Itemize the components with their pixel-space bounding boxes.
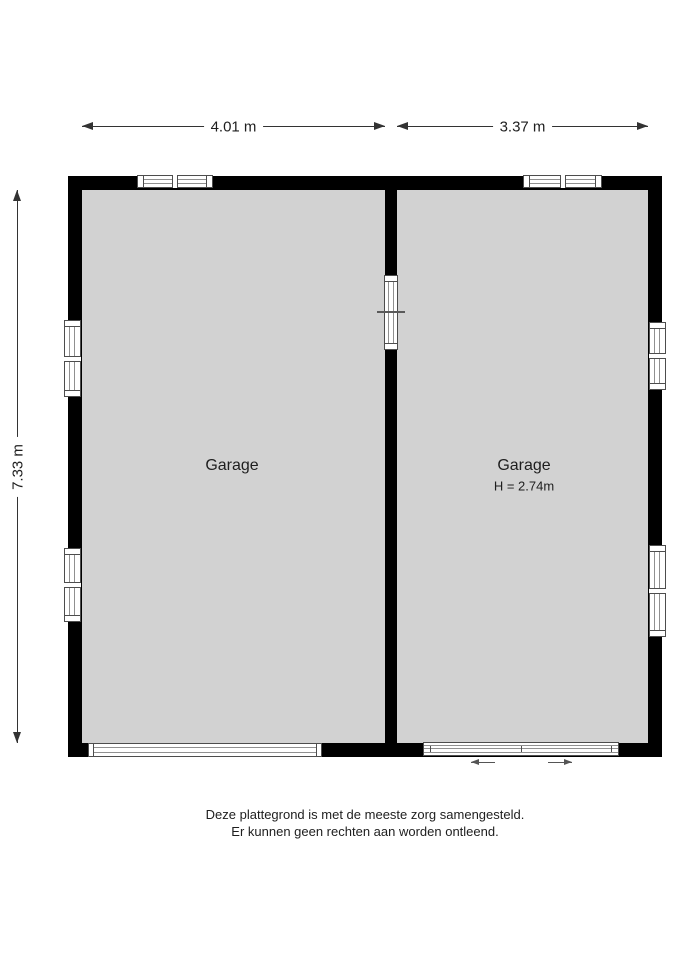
sliding-door-tick [521,746,522,752]
window-sash-divider [649,353,666,359]
window-sash-divider [560,175,566,188]
disclaimer: Deze plattegrond is met de meeste zorg s… [68,806,662,840]
window-top-right-icon [523,175,602,188]
window-sash-divider [64,582,81,588]
window-sash-divider [649,588,666,594]
disclaimer-line-1: Deze plattegrond is met de meeste zorg s… [68,806,662,823]
disclaimer-line-2: Er kunnen geen rechten aan worden ontlee… [68,823,662,840]
room-right-ceiling-height: H = 2.74m [494,479,554,494]
room-label-left: Garage [205,457,258,475]
window-right-lower-icon [649,545,666,637]
dimension-top-left-label: 4.01 m [204,119,264,136]
divider-window-cross-line [377,311,405,313]
dimension-top-right: 3.37 m [397,118,648,135]
dimension-top-left: 4.01 m [82,118,385,135]
window-left-upper-icon [64,320,81,397]
dimension-left: 7.33 m [9,190,26,743]
dimension-left-label: 7.33 m [10,437,27,497]
window-sash-divider [172,175,178,188]
room-label-right: Garage [497,457,550,475]
floorplan-canvas: 4.01 m 3.37 m 7.33 m Garage Garage [0,0,679,960]
window-sash-divider [64,356,81,362]
slide-direction-left-arrow-icon [471,762,495,763]
sliding-door-right-icon [423,742,619,756]
slide-direction-right-arrow-icon [548,762,572,763]
building-outline: Garage Garage H = 2.74m [68,176,662,757]
dimension-top-right-label: 3.37 m [493,119,553,136]
window-right-upper-icon [649,322,666,390]
garage-door-left-icon [88,743,322,757]
window-top-left-icon [137,175,213,188]
window-left-lower-icon [64,548,81,622]
